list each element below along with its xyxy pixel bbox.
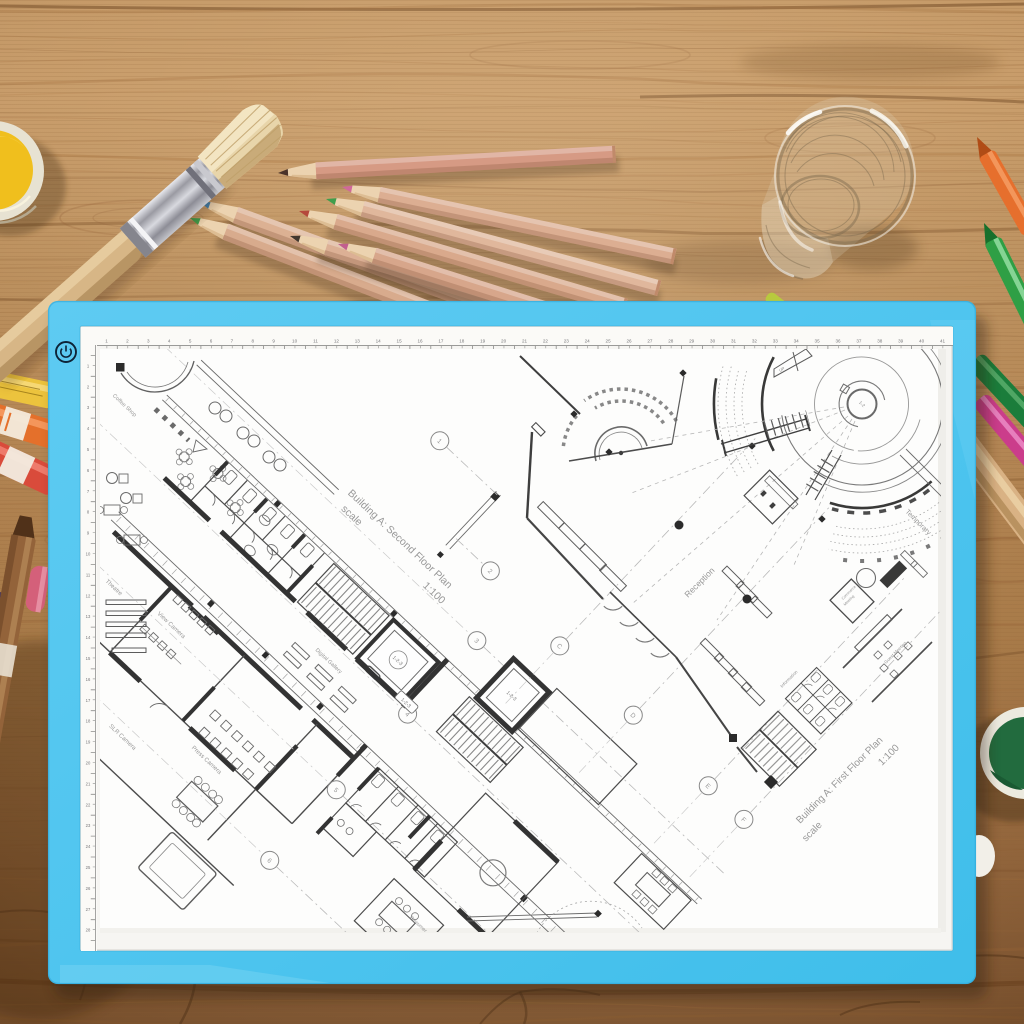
svg-text:22: 22 (543, 339, 549, 344)
svg-text:33: 33 (773, 339, 779, 344)
svg-text:15: 15 (86, 656, 91, 661)
svg-text:36: 36 (835, 339, 841, 344)
svg-text:34: 34 (794, 339, 800, 344)
svg-text:14: 14 (86, 635, 91, 640)
svg-text:22: 22 (86, 802, 91, 807)
svg-text:5: 5 (189, 339, 192, 344)
svg-text:16: 16 (417, 339, 423, 344)
svg-text:6: 6 (210, 339, 213, 344)
svg-text:19: 19 (86, 740, 91, 745)
svg-text:23: 23 (564, 339, 570, 344)
svg-text:8: 8 (252, 339, 255, 344)
svg-text:41: 41 (940, 339, 946, 344)
svg-text:17: 17 (438, 339, 444, 344)
svg-text:18: 18 (86, 719, 91, 724)
svg-text:3: 3 (147, 339, 150, 344)
svg-text:13: 13 (355, 339, 361, 344)
svg-text:2: 2 (126, 339, 129, 344)
svg-text:19: 19 (480, 339, 486, 344)
svg-text:29: 29 (689, 339, 695, 344)
svg-text:14: 14 (376, 339, 382, 344)
svg-text:27: 27 (86, 907, 91, 912)
svg-text:25: 25 (86, 865, 91, 870)
svg-text:25: 25 (606, 339, 612, 344)
svg-text:30: 30 (710, 339, 716, 344)
svg-text:40: 40 (919, 339, 925, 344)
svg-text:11: 11 (86, 572, 91, 577)
svg-text:26: 26 (626, 339, 632, 344)
svg-text:17: 17 (86, 698, 91, 703)
svg-text:1: 1 (105, 339, 108, 344)
svg-text:16: 16 (86, 677, 91, 682)
svg-text:20: 20 (501, 339, 507, 344)
svg-text:20: 20 (86, 761, 91, 766)
svg-text:31: 31 (731, 339, 737, 344)
svg-text:12: 12 (86, 593, 91, 598)
svg-text:15: 15 (397, 339, 403, 344)
svg-text:39: 39 (898, 339, 904, 344)
svg-text:7: 7 (231, 339, 234, 344)
svg-text:26: 26 (86, 886, 91, 891)
svg-text:24: 24 (585, 339, 591, 344)
svg-text:28: 28 (668, 339, 674, 344)
svg-text:9: 9 (272, 339, 275, 344)
svg-text:18: 18 (459, 339, 465, 344)
svg-text:21: 21 (522, 339, 528, 344)
svg-text:13: 13 (86, 614, 91, 619)
svg-text:10: 10 (292, 339, 298, 344)
svg-text:4: 4 (168, 339, 171, 344)
svg-text:10: 10 (86, 552, 91, 557)
svg-text:11: 11 (313, 339, 318, 344)
svg-text:21: 21 (86, 781, 91, 786)
svg-text:35: 35 (815, 339, 821, 344)
svg-text:38: 38 (877, 339, 883, 344)
svg-text:32: 32 (752, 339, 758, 344)
svg-text:12: 12 (334, 339, 340, 344)
svg-text:23: 23 (86, 823, 91, 828)
svg-text:28: 28 (86, 928, 91, 933)
svg-text:27: 27 (647, 339, 653, 344)
svg-text:24: 24 (86, 844, 91, 849)
svg-text:37: 37 (856, 339, 862, 344)
